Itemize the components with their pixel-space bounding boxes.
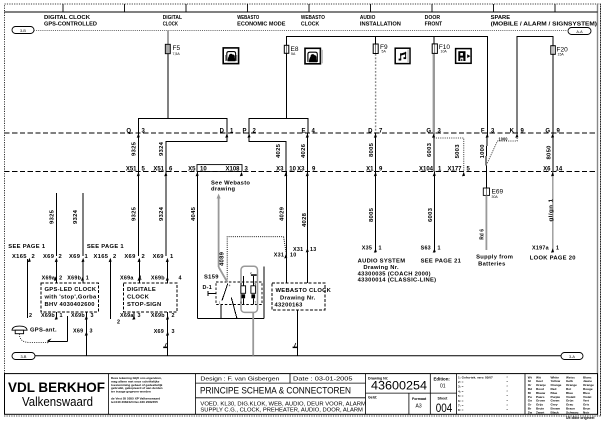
svg-text:4: =: 4: = [458, 389, 464, 393]
svg-text:X35: X35 [362, 246, 372, 252]
svg-text:Valkenswaard: Valkenswaard [22, 394, 93, 409]
svg-text:E: E [301, 128, 305, 134]
svg-text:X69a: X69a [120, 313, 134, 319]
svg-text:X3: X3 [276, 167, 284, 173]
svg-text:PRINCIPE SCHEMA & CONNECTOREN: PRINCIPE SCHEMA & CONNECTOREN [200, 386, 351, 397]
svg-text:X69: X69 [154, 329, 164, 335]
svg-text:X69a: X69a [120, 276, 134, 282]
svg-text:15A: 15A [558, 52, 565, 56]
svg-text:X108: X108 [225, 167, 240, 173]
svg-text:X69b: X69b [151, 276, 165, 282]
svg-text:2: 2 [29, 313, 32, 319]
svg-text:5A: 5A [382, 49, 387, 53]
svg-text:2: 2 [113, 254, 117, 260]
svg-text:Supply from: Supply from [476, 254, 513, 260]
svg-text:6003: 6003 [427, 143, 433, 157]
svg-text:ter inzage gegeven worden: ter inzage gegeven worden [111, 390, 151, 394]
svg-text:7,5A: 7,5A [173, 52, 181, 56]
svg-text:K: K [510, 128, 515, 134]
svg-text:Date : 03-01-2005: Date : 03-01-2005 [293, 376, 353, 382]
svg-text:3: 3 [138, 313, 141, 319]
svg-text:AUDIO: AUDIO [360, 15, 376, 21]
svg-text:X69a: X69a [42, 276, 56, 282]
svg-text:F5: F5 [173, 45, 181, 52]
svg-text:X69: X69 [73, 329, 83, 335]
svg-text:D-1: D-1 [203, 285, 212, 291]
svg-text:X69: X69 [69, 254, 81, 260]
svg-text:6003: 6003 [428, 208, 434, 222]
svg-text:4025: 4025 [276, 144, 282, 158]
svg-text:1: Gofra-tek. verv. 03/07: 1: Gofra-tek. verv. 03/07 [458, 375, 493, 379]
svg-text:5003: 5003 [455, 144, 461, 158]
svg-text:SEE PAGE 21: SEE PAGE 21 [421, 259, 462, 265]
svg-text:4026: 4026 [301, 144, 307, 158]
svg-text:tel.040 2082424 fax.040 208245: tel.040 2082424 fax.040 2082455 [111, 400, 158, 404]
svg-text:1: 1 [60, 313, 63, 319]
svg-text:1: 1 [556, 246, 559, 252]
svg-text:Uit dikte origineel: Uit dikte origineel [566, 416, 595, 420]
svg-text:4: 4 [179, 276, 182, 282]
svg-text:14: 14 [556, 167, 563, 173]
svg-text:4045: 4045 [191, 207, 197, 221]
svg-text:X69b: X69b [41, 313, 55, 319]
svg-text:SEE PAGE 1: SEE PAGE 1 [8, 244, 46, 250]
svg-text:FRONT: FRONT [425, 22, 443, 28]
svg-text:SUPPLY C.G., CLOCK, PREHEATER,: SUPPLY C.G., CLOCK, PREHEATER, AUDIO, DO… [200, 408, 363, 414]
svg-text:1: 1 [86, 276, 89, 282]
svg-text:1: 1 [85, 254, 89, 260]
svg-text:X177: X177 [447, 167, 462, 173]
svg-text:X69b: X69b [71, 313, 85, 319]
svg-text:SEE PAGE 1: SEE PAGE 1 [87, 244, 125, 250]
svg-text:X69: X69 [43, 254, 55, 260]
svg-text:DIGITALE: DIGITALE [127, 287, 156, 293]
svg-text:G: G [426, 128, 431, 134]
svg-text:Rd 6: Rd 6 [480, 229, 486, 240]
svg-text:8: =: 8: = [458, 408, 464, 412]
svg-text:D: D [220, 128, 225, 134]
svg-text:X165: X165 [12, 254, 27, 260]
svg-text:10A: 10A [441, 49, 448, 53]
svg-text:1000: 1000 [499, 137, 509, 142]
svg-text:Sheet: Sheet [438, 397, 449, 401]
svg-text:A-A: A-A [576, 30, 583, 34]
svg-text:WEBASTO: WEBASTO [301, 15, 325, 21]
svg-text:01: 01 [440, 384, 446, 390]
svg-text:43300014 (CLASSIC-LINE): 43300014 (CLASSIC-LINE) [358, 278, 437, 284]
svg-text:10: 10 [290, 253, 297, 259]
svg-text:X31: X31 [293, 247, 303, 253]
svg-text:3-A: 3-A [569, 355, 575, 359]
svg-text:X51: X51 [126, 167, 137, 173]
svg-text:Edition:: Edition: [434, 377, 451, 382]
svg-text:43300035 (COACH 2000): 43300035 (COACH 2000) [358, 271, 431, 277]
svg-text:004: 004 [436, 403, 453, 415]
svg-text:43200163: 43200163 [275, 303, 304, 309]
svg-text:7: =: 7: = [458, 404, 464, 408]
svg-text:3: 3 [172, 329, 175, 335]
svg-text:X5: X5 [188, 167, 196, 173]
svg-text:Schwarz: Schwarz [566, 410, 579, 414]
svg-text:3: =: 3: = [458, 385, 464, 389]
svg-text:30A: 30A [492, 195, 499, 199]
svg-text:BHV 4030402600: BHV 4030402600 [45, 302, 95, 308]
svg-text:WEBASTO: WEBASTO [237, 15, 259, 21]
svg-text:Drawing Nr.: Drawing Nr. [363, 265, 399, 271]
svg-text:(MOBILE / ALARM / SIGNSYSTEM): (MOBILE / ALARM / SIGNSYSTEM) [491, 22, 598, 28]
svg-text:VDL BERKHOF: VDL BERKHOF [8, 379, 105, 395]
svg-text:GPS-LED CLOCK: GPS-LED CLOCK [45, 287, 97, 293]
svg-text:2: =: 2: = [458, 380, 464, 384]
svg-text:9324: 9324 [73, 210, 79, 224]
svg-text:ECONOMIC MODE: ECONOMIC MODE [237, 22, 286, 28]
svg-text:X3: X3 [297, 167, 305, 173]
svg-text:5A: 5A [291, 52, 296, 56]
svg-text:4089: 4089 [220, 252, 226, 266]
svg-text:10: 10 [289, 167, 296, 173]
svg-text:CLOCK: CLOCK [127, 295, 150, 301]
svg-text:DIGITAL: DIGITAL [163, 15, 183, 21]
svg-text:S159: S159 [204, 275, 219, 281]
svg-text:1: 1 [438, 246, 441, 252]
svg-text:Design : F. van Gisbergen: Design : F. van Gisbergen [200, 376, 279, 382]
svg-text:8005: 8005 [369, 208, 375, 222]
svg-text:3-B: 3-B [20, 29, 26, 33]
svg-text:13: 13 [310, 247, 317, 253]
svg-text:8050: 8050 [547, 145, 553, 159]
svg-text:9324: 9324 [159, 142, 165, 156]
svg-text:X69: X69 [124, 254, 136, 260]
svg-text:Batteries: Batteries [478, 262, 506, 268]
svg-text:STOP-SIGN: STOP-SIGN [127, 302, 161, 308]
svg-text:3-B: 3-B [21, 355, 27, 359]
svg-text:INSTALLATION: INSTALLATION [360, 22, 401, 28]
svg-text:Zwart: Zwart [536, 410, 544, 414]
svg-text:43600254: 43600254 [371, 380, 428, 392]
svg-text:LOOK PAGE 20: LOOK PAGE 20 [530, 255, 576, 261]
svg-text:9325: 9325 [132, 142, 138, 156]
svg-text:G: G [545, 128, 550, 134]
svg-text:drawing: drawing [211, 187, 235, 193]
svg-text:4029: 4029 [280, 207, 286, 221]
svg-text:X165: X165 [94, 254, 109, 260]
svg-text:Black: Black [551, 410, 560, 414]
svg-text:5: =: 5: = [458, 394, 464, 398]
svg-text:1: 1 [170, 254, 174, 260]
svg-text:X69b: X69b [67, 276, 81, 282]
svg-text:3: 3 [90, 329, 93, 335]
svg-text:with 'stop',Gorba: with 'stop',Gorba [44, 295, 97, 301]
svg-text:gl/gn 1: gl/gn 1 [548, 199, 554, 222]
svg-text:CLOCK: CLOCK [163, 22, 178, 28]
svg-text:1: 1 [379, 246, 382, 252]
svg-text:1000: 1000 [480, 144, 486, 158]
svg-text:4028: 4028 [302, 213, 308, 227]
svg-text:D: D [368, 128, 373, 134]
svg-text:Geld:: Geld: [368, 395, 377, 399]
svg-text:2: 2 [59, 254, 63, 260]
svg-text:X6: X6 [543, 167, 551, 173]
svg-text:2: 2 [172, 313, 175, 319]
svg-text:Noir: Noir [583, 410, 590, 414]
svg-text:X197a: X197a [532, 246, 550, 252]
svg-text:2: 2 [117, 320, 120, 326]
svg-text:8005: 8005 [369, 143, 375, 157]
svg-text:X31: X31 [274, 253, 284, 259]
svg-text:3: 3 [91, 313, 94, 319]
svg-text:2: 2 [32, 254, 36, 260]
svg-text:Q: Q [126, 128, 131, 134]
svg-text:F: F [481, 128, 485, 134]
svg-text:DOOR: DOOR [425, 15, 441, 21]
svg-text:S63: S63 [421, 246, 431, 252]
svg-text:X69: X69 [153, 254, 165, 260]
svg-text:AUDIO SYSTEM: AUDIO SYSTEM [358, 259, 406, 265]
svg-text:GPS-CONTROLLED: GPS-CONTROLLED [44, 22, 97, 28]
svg-text:Formaat: Formaat [412, 397, 427, 401]
svg-text:X51: X51 [153, 167, 164, 173]
svg-text:X104: X104 [419, 167, 434, 173]
svg-text:X1: X1 [366, 167, 374, 173]
svg-text:Zw: Zw [528, 410, 533, 414]
svg-text:Drawing Nr.: Drawing Nr. [280, 296, 316, 302]
svg-text:9325: 9325 [50, 210, 56, 224]
svg-text:CLOCK: CLOCK [301, 22, 319, 28]
svg-text:WEBASTO CLOCK: WEBASTO CLOCK [276, 288, 332, 294]
svg-text:GPS-ant.: GPS-ant. [30, 328, 57, 334]
svg-text:P: P [242, 128, 246, 134]
svg-text:X69b: X69b [151, 313, 165, 319]
svg-text:2: 2 [59, 276, 62, 282]
svg-text:6: =: 6: = [458, 399, 464, 403]
svg-text:A3: A3 [416, 404, 422, 410]
svg-text:2: 2 [142, 254, 146, 260]
svg-text:9324: 9324 [159, 207, 165, 221]
svg-text:9325: 9325 [132, 207, 138, 221]
svg-text:DIGITAL CLOCK: DIGITAL CLOCK [44, 15, 90, 21]
svg-text:SPARE: SPARE [491, 15, 511, 21]
